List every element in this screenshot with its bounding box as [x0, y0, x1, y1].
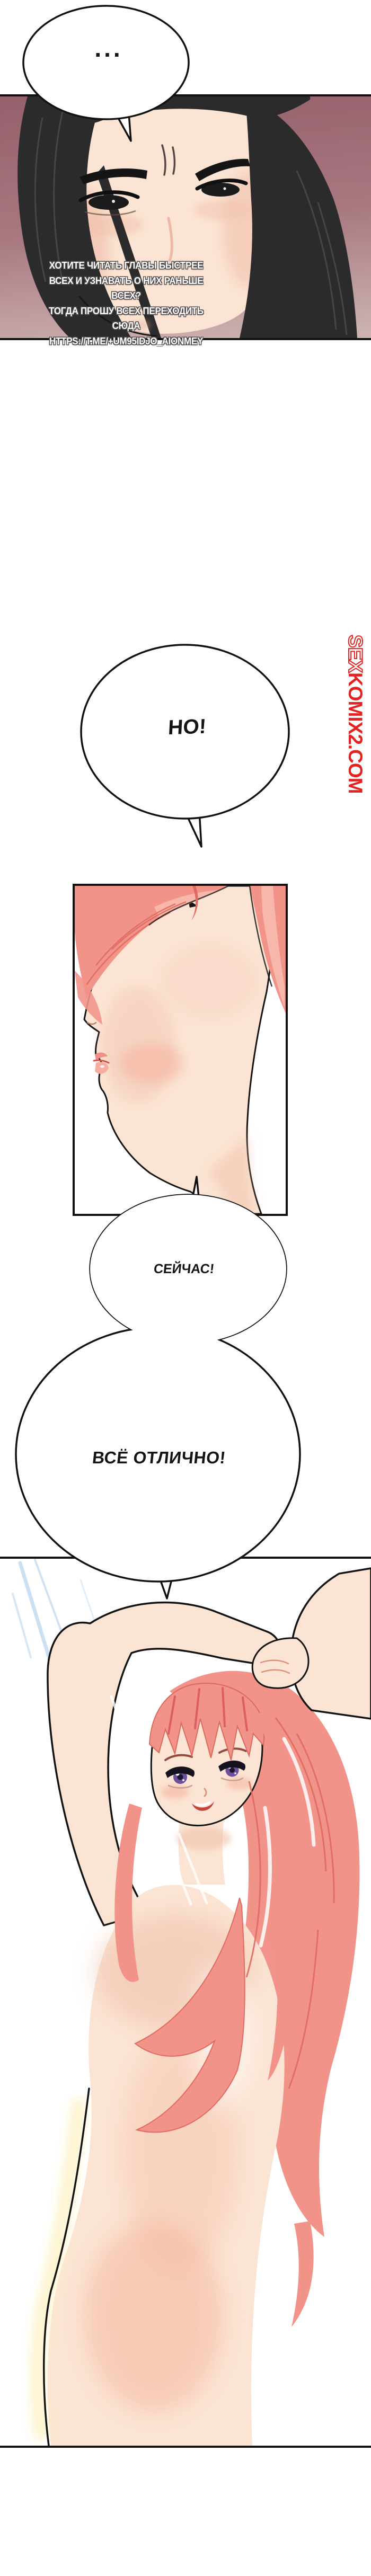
panel-woman-raised-arms-illustration	[0, 1557, 371, 2448]
ellipsis-text: ...	[82, 35, 135, 62]
speech-bubble-ellipsis	[11, 0, 201, 154]
panel3-artwork	[0, 1559, 371, 2446]
speech-bubble-no	[74, 636, 302, 853]
panel-profile-pink-haired-woman	[73, 884, 288, 1216]
site-watermark-prefix: SEX	[344, 635, 366, 672]
now-text: СЕЙЧАС!	[141, 1262, 227, 1277]
speech-bubble-compound	[8, 1168, 326, 1608]
promo-watermark: ХОТИТЕ ЧИТАТЬ ГЛАВЫ БЫСТРЕЕ ВСЕХ И УЗНАВ…	[36, 258, 217, 349]
promo-line: ХОТИТЕ ЧИТАТЬ ГЛАВЫ БЫСТРЕЕ	[36, 258, 217, 273]
no-text: НО!	[147, 715, 228, 740]
site-watermark: SEXKOMIX2.COM	[344, 635, 366, 794]
promo-telegram-link: HTTPS://T.ME/+UM95IDJO_AIONMEY	[36, 334, 217, 349]
comic-page: ХОТИТЕ ЧИТАТЬ ГЛАВЫ БЫСТРЕЕ ВСЕХ И УЗНАВ…	[0, 0, 371, 2576]
site-watermark-suffix: KOMIX2.COM	[344, 672, 366, 793]
panel2-artwork	[75, 886, 286, 1214]
promo-line: ТОГДА ПРОШУ ВСЕХ ПЕРЕХОДИТЬ СЮДА	[36, 304, 217, 334]
great-text: ВСЁ ОТЛИЧНО!	[60, 1449, 258, 1467]
promo-line: ВСЕХ И УЗНАВАТЬ О НИХ РАНЬШЕ ВСЕХ?	[36, 273, 217, 304]
